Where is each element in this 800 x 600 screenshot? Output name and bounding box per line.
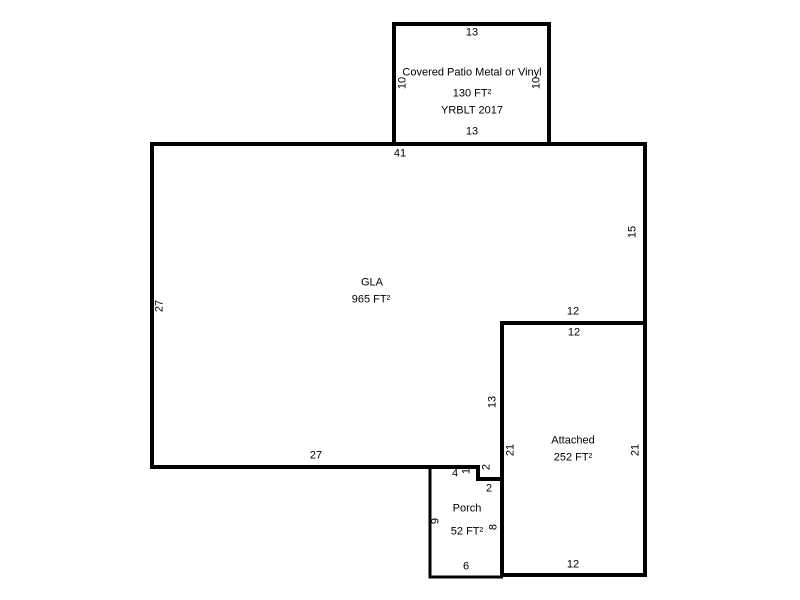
attached-dim-top-outer: 12 (567, 307, 579, 318)
patio-title: Covered Patio Metal or Vinyl (402, 68, 541, 79)
gla-dim-left: 27 (155, 300, 166, 312)
gla-area: 965 FT² (352, 295, 391, 306)
porch-title: Porch (453, 504, 482, 515)
attached-title: Attached (551, 436, 594, 447)
step-dim-horizontal-outer: 2 (482, 464, 493, 470)
patio-dim-bottom: 13 (466, 127, 478, 138)
patio-yrblt: YRBLT 2017 (441, 106, 503, 117)
attached-area: 252 FT² (554, 453, 593, 464)
porch-dim-bottom: 6 (463, 562, 469, 573)
attached-outline (502, 323, 645, 575)
porch-dim-top: 4 (452, 469, 458, 480)
patio-dim-left: 10 (398, 77, 409, 89)
step-dim-horizontal-inner: 2 (486, 484, 492, 495)
attached-dim-top-inner: 12 (568, 328, 580, 339)
attached-dim-left-outer: 13 (488, 396, 499, 408)
gla-dim-top: 41 (394, 149, 406, 160)
porch-dim-left: 9 (431, 518, 442, 524)
attached-dim-bottom: 12 (567, 560, 579, 571)
gla-dim-bottom: 27 (310, 451, 322, 462)
step-dim-vertical: 1 (462, 468, 473, 474)
patio-dim-right: 10 (532, 77, 543, 89)
attached-dim-left-inner: 21 (506, 444, 517, 456)
patio-dim-top: 13 (466, 28, 478, 39)
gla-dim-right: 15 (628, 226, 639, 238)
floor-plan-sketch: 13 Covered Patio Metal or Vinyl 130 FT² … (0, 0, 800, 600)
floor-plan-walls (0, 0, 800, 600)
gla-title: GLA (361, 278, 383, 289)
attached-dim-right: 21 (631, 444, 642, 456)
porch-area: 52 FT² (451, 527, 483, 538)
porch-dim-right: 8 (489, 524, 500, 530)
patio-area: 130 FT² (453, 89, 492, 100)
